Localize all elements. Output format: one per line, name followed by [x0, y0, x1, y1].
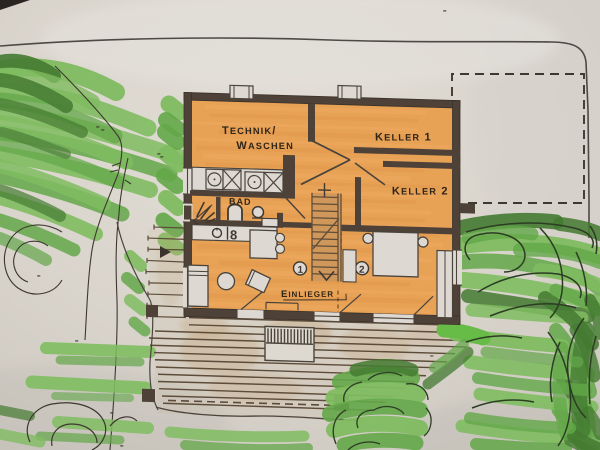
svg-text:WASCHEN: WASCHEN: [236, 140, 294, 152]
svg-text:EINLIEGER: EINLIEGER: [281, 289, 334, 300]
svg-text:KELLER 1: KELLER 1: [375, 131, 432, 143]
svg-text:8: 8: [230, 227, 237, 242]
svg-text:KELLER 2: KELLER 2: [392, 185, 449, 197]
svg-text:TECHNIK/: TECHNIK/: [222, 125, 277, 137]
svg-text:2: 2: [359, 265, 365, 276]
svg-text:1: 1: [298, 265, 304, 276]
svg-text:BAD: BAD: [229, 196, 251, 207]
